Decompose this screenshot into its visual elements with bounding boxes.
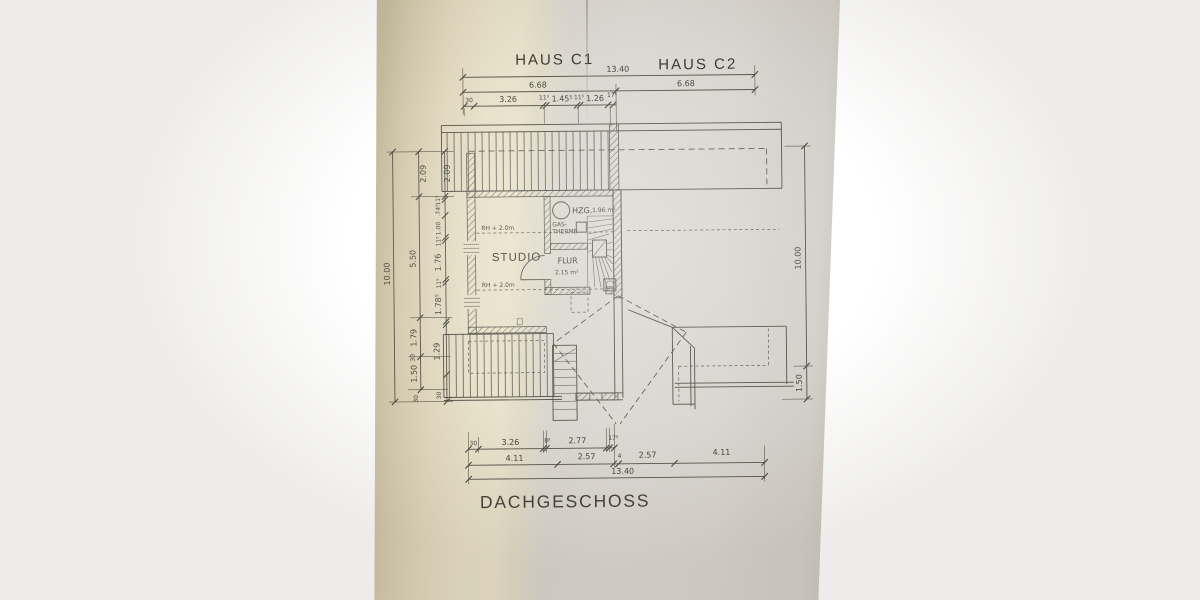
flur-area — [517, 255, 617, 325]
dimension-chain-right: 10.00 1.50 — [780, 146, 813, 399]
roof-valley-lines — [553, 295, 687, 424]
haus-c2-label: HAUS C2 — [658, 56, 737, 74]
dim-left-129: 1.29 — [432, 343, 441, 361]
dim-bot-326: 3.26 — [501, 438, 519, 447]
hzg-room-label: HZG. — [572, 206, 592, 215]
dim-left-1785: 1.78⁵ — [434, 294, 443, 315]
dim-top-half-left: 6.68 — [529, 81, 547, 90]
floor-plan-drawing: HAUS C1 HAUS C2 13.40 6.68 6.68 30 3.26 … — [0, 0, 1200, 600]
dim-left-115a: 11⁵ — [435, 195, 442, 206]
room-height-top-label: RH + 2.0m — [481, 225, 514, 232]
dim-bot-277: 2.77 — [568, 436, 586, 445]
dim-right-total: 10.00 — [793, 247, 802, 270]
dim-left-115c: 11⁵ — [436, 278, 443, 289]
dim-left-745: .74⁵ — [435, 204, 442, 217]
dimension-chain-bottom: 30 3.26 8⁵ 2.77 17⁵ 4.11 2.57 4 2.57 4.1… — [468, 422, 765, 484]
dim-bot-total: 13.40 — [611, 467, 634, 476]
dim-left-total: 10.00 — [383, 263, 392, 286]
dim-left-176: 1.76 — [434, 254, 443, 272]
dim-left-179: 1.79 — [409, 329, 418, 347]
dim-bot-257b: 2.57 — [639, 450, 657, 459]
dim-bot-85: 8⁵ — [544, 437, 551, 444]
hzg-area-label: 1.96 m² — [592, 207, 616, 214]
boiler-circle — [553, 202, 570, 219]
dim-left-30c: 30 — [436, 392, 443, 400]
dim-bot-175: 17⁵ — [608, 435, 619, 442]
dim-left-209a: 2.09 — [419, 165, 428, 183]
dim-left-150: 1.50 — [410, 365, 419, 383]
dim-left-30a: 30 — [410, 354, 417, 362]
window-west-upper — [463, 241, 479, 255]
dim-bot-257a: 2.57 — [578, 452, 596, 461]
gas-unit-box — [576, 222, 586, 232]
small-marker — [517, 319, 522, 325]
floor-plan-photo: HAUS C1 HAUS C2 13.40 6.68 6.68 30 3.26 … — [0, 0, 1200, 600]
roof-ridge-band — [441, 122, 782, 191]
window-west-lower — [464, 295, 480, 309]
dim-top-1455: 1.45⁵ — [552, 94, 573, 103]
dim-bot-4: 4 — [618, 453, 622, 460]
party-wall — [613, 190, 623, 398]
dim-left-30b: 30 — [413, 395, 420, 403]
flur-area-label: 2.15 m² — [555, 269, 579, 276]
dim-top-total: 13.40 — [606, 65, 629, 74]
dim-left-550: 5.50 — [409, 250, 418, 268]
gas-therme-label-line2: THERME — [551, 228, 577, 235]
dim-top-half-right: 6.68 — [677, 79, 695, 88]
floor-title: DACHGESCHOSS — [480, 491, 651, 513]
dim-left-100: 1.00 — [435, 222, 442, 236]
room-height-bottom-label: RH + 2.0m — [482, 282, 515, 289]
dormer-haus-c2 — [628, 308, 794, 410]
winder-stair — [587, 216, 614, 287]
haus-c1-label: HAUS C1 — [515, 51, 594, 69]
dim-top-175: 17⁵ — [607, 92, 618, 99]
paper-crease — [586, 0, 588, 128]
stair-cut-line — [552, 348, 576, 362]
dim-left-115b: 11⁵ — [435, 236, 442, 247]
flur-room-label: FLUR — [558, 256, 579, 265]
dim-top-126: 1.26 — [586, 94, 604, 103]
balcony-band — [443, 333, 562, 400]
dim-top-115a: 11⁵ — [539, 94, 550, 101]
dim-left-209b: 2.09 — [443, 165, 452, 183]
dim-bot-411a: 4.11 — [506, 454, 524, 463]
dim-top-115b: 11⁵ — [574, 94, 585, 101]
dim-bot-411b: 4.11 — [713, 448, 731, 457]
dimension-chain-top: 13.40 6.68 6.68 30 3.26 11⁵ 1.45⁵ 11⁵ 1.… — [463, 64, 756, 133]
party-wall-top — [609, 124, 619, 190]
studio-room-label: STUDIO — [492, 252, 542, 264]
studio-south-wall — [468, 327, 546, 334]
dim-top-326: 3.26 — [499, 95, 517, 104]
dim-right-150: 1.50 — [795, 374, 804, 392]
chimney-dashed-box — [571, 292, 588, 312]
